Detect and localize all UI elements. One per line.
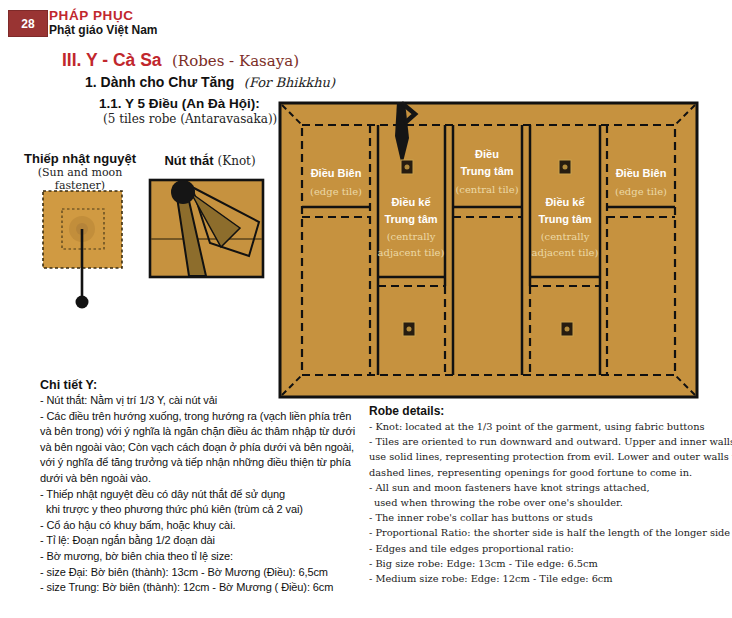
- knot-ball-icon: [171, 180, 195, 204]
- tile-3-sublabel: (central tile): [455, 184, 518, 195]
- book-page: 28 PHÁP PHỤC Phật giáo Việt Nam III. Y -…: [0, 0, 732, 618]
- details-vi-line: - Các điều trên hướng xuống, trong hướng…: [40, 409, 380, 425]
- fastener-button-icon: [403, 322, 415, 336]
- fastener-string-knob-icon: [76, 296, 89, 309]
- details-vi-line: - Cổ áo hậu có khuy bấm, hoặc khuy cài.: [40, 518, 380, 534]
- section-title-vi: III. Y - Cà Sa: [62, 50, 162, 70]
- details-vi-line: - Bờ mương, bờ biên chia theo tỉ lệ size…: [40, 549, 380, 565]
- details-vi: Chi tiết Y: - Nút thắt: Nằm vị trí 1/3 Y…: [40, 377, 380, 596]
- item-title-en: (5 tiles robe (Antaravasaka)): [103, 112, 277, 126]
- page-number-box: 28: [8, 10, 48, 37]
- details-en-heading: Robe details:: [369, 403, 729, 419]
- details-en-line: - All sun and moon fasteners have knot s…: [369, 480, 729, 495]
- fastener-button-icon: [561, 322, 573, 336]
- details-vi-line: và bên ngoài vào; Còn vạch cách đoạn ở p…: [40, 440, 380, 456]
- knot-caption-vi: Nút thắt: [164, 153, 213, 168]
- details-vi-line: - Tỉ lệ: Đoạn ngắn bằng 1/2 đoạn dài: [40, 533, 380, 549]
- details-vi-line: khi trược y theo phương thức phú kiên (t…: [40, 502, 380, 518]
- knot-figure: [148, 177, 266, 280]
- tile-5-sublabel: (edge tile): [615, 186, 667, 197]
- details-vi-heading: Chi tiết Y:: [40, 377, 380, 393]
- item-title-vi: 1.1. Y 5 Điều (An Đà Hội):: [99, 96, 260, 111]
- tile-3-label-line2: Trung tâm: [460, 165, 513, 177]
- details-vi-line: với ý nghĩa để tăng trưởng và tiếp nhận …: [40, 455, 380, 471]
- details-en-line: used when throwing the robe over one's s…: [369, 495, 729, 510]
- subsection-title-vi: 1. Dành cho Chư Tăng: [85, 74, 234, 90]
- tile-4-label-line2: Trung tâm: [538, 213, 591, 225]
- tile-1-label: Điều Biên: [311, 167, 362, 179]
- subsection-title-en: (For Bhikkhu): [244, 75, 335, 90]
- details-vi-line: dưới và bên ngoài vào.: [40, 471, 380, 487]
- section-title-en: (Robes - Kasaya): [172, 52, 299, 70]
- details-en-line: - Knot: located at the 1/3 point of the …: [369, 419, 729, 434]
- page-number: 28: [21, 17, 34, 31]
- tile-5-label: Điều Biên: [616, 167, 667, 179]
- details-vi-line: - size Đại: Bờ biên (thành): 13cm - Bờ M…: [40, 565, 380, 581]
- fastener-button-icon: [401, 160, 413, 174]
- details-en-line: - Big size robe: Edge: 13cm - Tile edge:…: [369, 556, 729, 571]
- details-vi-line: - Nút thắt: Nằm vị trí 1/3 Y, cài nút vả…: [40, 393, 380, 409]
- tile-3-label-line1: Điều: [475, 148, 499, 160]
- details-vi-line: - size Trung: Bờ biên (thành): 12cm - Bờ…: [40, 580, 380, 596]
- knot-figure-caption: Nút thắt(Knot): [158, 151, 262, 169]
- details-en: Robe details: - Knot: located at the 1/3…: [369, 403, 729, 586]
- fastener-caption-vi: Thiếp nhật nguyệt: [14, 151, 146, 166]
- details-vi-line: - Thiếp nhật nguyệt đều có dây nút thắt …: [40, 487, 380, 503]
- sun-moon-fastener-figure: [38, 186, 128, 314]
- subsection-title: 1. Dành cho Chư Tăng (For Bhikkhu): [85, 73, 335, 91]
- details-en-line: - Edges and tile edges proportional rati…: [369, 541, 729, 556]
- tile-2-sublabel-line1: (centrally: [387, 231, 436, 242]
- tile-1-sublabel: (edge tile): [310, 186, 362, 197]
- knot-caption-en: (Knot): [218, 154, 256, 168]
- tile-2-label-line2: Trung tâm: [384, 213, 437, 225]
- tile-4-sublabel-line1: (centrally: [541, 231, 590, 242]
- details-en-line: dashed lines, representing openings for …: [369, 465, 729, 480]
- tile-2-sublabel-line2: adjacent tile): [378, 247, 445, 258]
- robe-diagram: Điều Biên (edge tile) Điều kế Trung tâm …: [278, 100, 700, 400]
- brand-subtitle: Phật giáo Việt Nam: [49, 23, 157, 37]
- tile-2-label-line1: Điều kế: [391, 196, 431, 208]
- details-en-line: - Proportional Ratio: the shorter side i…: [369, 525, 729, 540]
- details-en-line: - The inner robe's collar has buttons or…: [369, 510, 729, 525]
- details-en-line: use solid lines, representing protection…: [369, 449, 729, 464]
- tile-4-label-line1: Điều kế: [545, 196, 585, 208]
- brand-title: PHÁP PHỤC: [49, 8, 134, 23]
- details-en-line: - Tiles are oriented to run downward and…: [369, 434, 729, 449]
- fastener-button-icon: [559, 160, 571, 174]
- tile-4-sublabel-line2: adjacent tile): [532, 247, 599, 258]
- details-vi-line: và bên trong) với ý nghĩa là ngăn chặn đ…: [40, 424, 380, 440]
- section-title: III. Y - Cà Sa (Robes - Kasaya): [62, 50, 299, 71]
- details-en-line: - Medium size robe: Edge: 12cm - Tile ed…: [369, 571, 729, 586]
